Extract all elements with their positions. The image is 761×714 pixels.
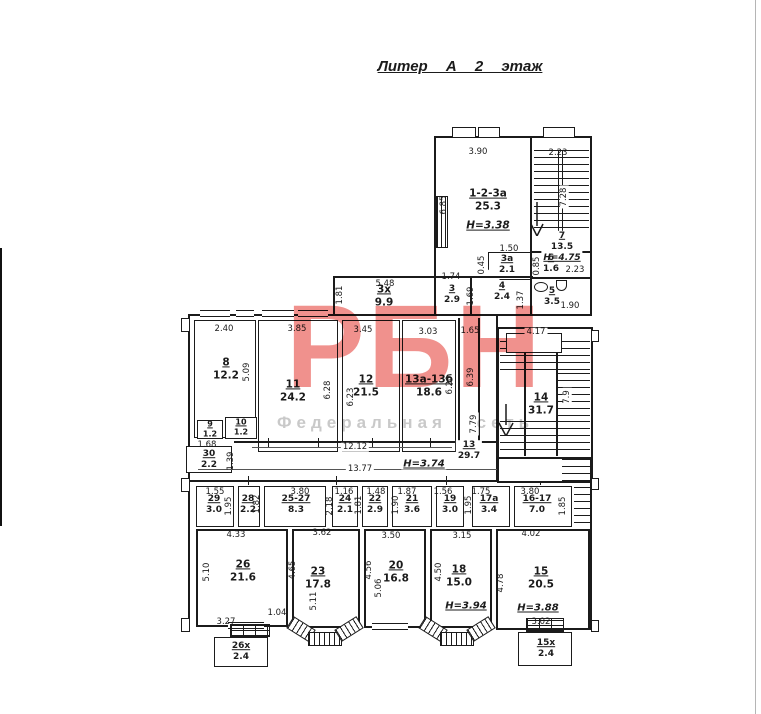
door-jamb (336, 476, 337, 485)
pilaster (591, 330, 599, 342)
dimension: 1.68 (198, 441, 217, 450)
room-height-15: Н=3.88 (515, 603, 560, 614)
dimension: 3.80 (521, 488, 540, 497)
roof-bump (478, 127, 500, 138)
dimension: 5.09 (243, 363, 252, 382)
dimension: 1.81 (355, 496, 364, 515)
dimension: 3.80 (291, 488, 310, 497)
room-label-15x: 15х 2.4 (537, 638, 555, 660)
pilaster (591, 478, 599, 490)
dimension: 4.02 (522, 530, 541, 539)
dimension: 1.39 (227, 452, 236, 471)
room-height-13: Н=3.74 (401, 459, 446, 470)
dimension: 5.11 (310, 592, 319, 611)
room-label-20: 20 16.8 (383, 559, 409, 584)
dimension: 2.40 (215, 325, 234, 334)
dimension: 1.90 (561, 302, 580, 311)
roof-bump (543, 127, 575, 138)
dimension: 5.06 (375, 579, 384, 598)
stair-down-arrow-icon (530, 202, 544, 236)
dimension: 0.85 (533, 257, 542, 276)
room-label-19: 19 3.0 (442, 494, 458, 516)
door-jamb (446, 476, 447, 485)
dimension: 1.85 (559, 497, 568, 516)
room-height-18: Н=3.94 (443, 601, 488, 612)
room-label-3: 3 2.9 (444, 284, 460, 306)
dimension: 4.65 (289, 561, 298, 580)
room-label-4: 4 2.4 (494, 281, 510, 303)
room-label-1-2-3a: 1-2-3а 25.3 Н=3.38 (466, 188, 510, 233)
wall (531, 277, 591, 279)
room-label-21: 21 3.6 (404, 494, 420, 516)
dimension: 1.95 (225, 497, 234, 516)
pilaster (591, 620, 599, 632)
dimension: 3.02 (532, 618, 551, 627)
dimension: 3.90 (469, 148, 488, 157)
dimension: 3.85 (288, 325, 307, 334)
room-label-3a: 3а 2.1 (499, 254, 515, 276)
dimension: 3.62 (313, 529, 332, 538)
dimension: 1.55 (206, 488, 225, 497)
dimension: 1.65 (461, 327, 480, 336)
roof-bump (452, 127, 476, 138)
page-title: Литер А 2 этаж (340, 58, 580, 75)
window-mark (262, 310, 294, 317)
dimension: 12.12 (341, 443, 369, 452)
dimension: 7.28 (560, 186, 569, 209)
dimension: 1.75 (472, 488, 491, 497)
outer-wall (188, 482, 190, 628)
stair-down-arrow-icon (498, 404, 514, 436)
room-label-5: 5 3.5 (544, 286, 560, 308)
dimension: 7.9 (563, 388, 572, 406)
dimension: 2.23 (549, 149, 568, 158)
dimension: 3.27 (217, 618, 236, 627)
dimension: 3.03 (419, 328, 438, 337)
balcony-hatch (230, 624, 270, 637)
door-jamb (318, 438, 319, 447)
dimension: 1.16 (335, 488, 354, 497)
dimension: 1.04 (268, 609, 287, 618)
room-label-14: 14 31.7 (526, 391, 556, 416)
dimension: 1.90 (392, 496, 401, 515)
room-label-16-17: 16-17 7.0 (523, 494, 552, 516)
dimension: 4.33 (227, 531, 246, 540)
dimension: 6.23 (347, 388, 356, 407)
scan-edge-right (755, 0, 756, 714)
window-mark (372, 623, 408, 630)
dimension: 2.23 (566, 266, 585, 275)
room-label-24: 24 2.1 (337, 494, 353, 516)
pilaster (181, 318, 190, 332)
dimension: 6.20 (446, 376, 455, 395)
dimension: 13.77 (346, 465, 374, 474)
dimension: 3.15 (453, 532, 472, 541)
dimension: 1.37 (517, 291, 526, 310)
stair-well-edge (556, 341, 558, 456)
room-label-26x: 26х 2.4 (232, 641, 250, 663)
room-label-23: 23 17.8 (305, 565, 331, 590)
window-mark (298, 310, 328, 317)
dimension: 4.17 (525, 328, 548, 337)
dimension: 1.82 (253, 495, 262, 514)
room-label-26: 26 21.6 (230, 558, 256, 583)
dimension: 1.74 (442, 273, 461, 282)
window-mark (236, 310, 254, 317)
room-label-30: 30 2.2 (201, 449, 217, 471)
wall (458, 318, 460, 444)
dimension: 6.39 (467, 368, 476, 387)
dimension: 4.50 (435, 563, 444, 582)
dimension: 3.50 (382, 532, 401, 541)
dimension: 5.10 (203, 563, 212, 582)
room-label-25-27: 25-27 8.3 (282, 494, 311, 516)
door-jamb (248, 476, 249, 485)
room-label-29: 29 3.0 (206, 494, 222, 516)
door-jamb (372, 438, 373, 447)
room-label-11: 11 24.2 (280, 378, 306, 403)
floor-plan: Литер А 2 этаж (0, 0, 761, 714)
dimension: 1.95 (465, 496, 474, 515)
dimension: 1.56 (434, 488, 453, 497)
room-label-9: 9 1.2 (203, 419, 217, 438)
room-label-8: 8 12.2 (213, 356, 239, 381)
stair-treads (562, 459, 591, 482)
room-label-12: 12 21.5 (353, 373, 379, 398)
dimension: 6.85 (440, 196, 449, 215)
dimension: 2.18 (326, 497, 335, 516)
room-label-17a: 17а 3.4 (480, 494, 499, 516)
dimension: 1.81 (336, 286, 345, 305)
room-label-18: 18 15.0 (446, 563, 472, 588)
room-label-6: 6 1.6 (543, 253, 559, 275)
dimension: 4.56 (365, 561, 374, 580)
room-label-13: 13 29.7 (456, 440, 482, 462)
dimension: 1.50 (500, 245, 519, 254)
dimension: 4.78 (497, 574, 506, 593)
room-label-22: 22 2.9 (367, 494, 383, 516)
scan-edge-left (0, 248, 2, 526)
dimension: 5.48 (376, 280, 395, 289)
room-label-10: 10 1.2 (234, 417, 248, 436)
dimension: 1.48 (367, 488, 386, 497)
pilaster (181, 618, 190, 632)
window-mark (200, 310, 230, 317)
scanned-floor-plan-page: { "title": "Литер А 2 этаж", "watermark"… (0, 0, 761, 714)
door-jamb (430, 438, 431, 447)
dimension: 3.45 (354, 326, 373, 335)
room-label-15: 15 20.5 (528, 565, 554, 590)
dimension: 6.28 (324, 381, 333, 400)
dimension: 1.69 (467, 287, 476, 306)
dimension: 7.79 (470, 413, 479, 436)
door-jamb (268, 438, 269, 447)
dimension: 0.45 (478, 256, 487, 275)
pilaster (181, 478, 190, 492)
